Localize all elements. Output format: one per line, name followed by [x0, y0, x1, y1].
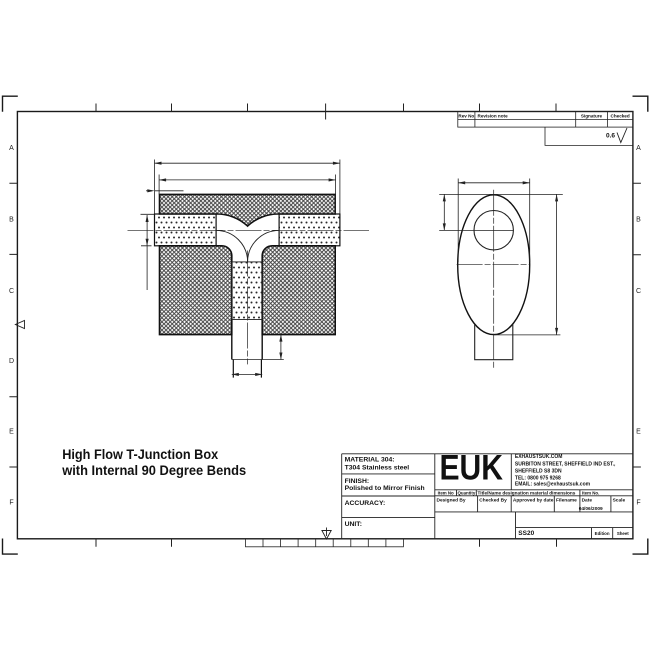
svg-text:Approved by date: Approved by date [513, 498, 554, 504]
svg-text:Designed By: Designed By [437, 498, 466, 504]
svg-text:E: E [636, 429, 641, 436]
svg-text:A: A [9, 145, 14, 152]
svg-text:EXHAUSTSUK.COM: EXHAUSTSUK.COM [515, 454, 563, 460]
svg-text:SHEFFIELD S8 3DN: SHEFFIELD S8 3DN [515, 469, 562, 475]
svg-text:EUK: EUK [440, 449, 504, 488]
svg-text:D: D [9, 358, 14, 365]
svg-text:SURBITON STREET, SHEFFIELD IND: SURBITON STREET, SHEFFIELD IND EST., [515, 462, 616, 468]
svg-text:Filename: Filename [556, 498, 577, 504]
svg-text:Quantity: Quantity [457, 490, 475, 495]
svg-text:F: F [636, 500, 640, 507]
svg-text:A: A [636, 145, 641, 152]
svg-text:Item No.: Item No. [582, 490, 599, 495]
svg-text:FINISH:: FINISH: [345, 478, 370, 485]
svg-text:Edition: Edition [595, 531, 610, 536]
svg-text:with Internal 90 Degree Bends: with Internal 90 Degree Bends [61, 463, 246, 478]
svg-text:T304 Stainless steel: T304 Stainless steel [345, 465, 410, 472]
svg-text:High Flow T-Junction Box: High Flow T-Junction Box [62, 447, 218, 462]
svg-text:Item No: Item No [438, 490, 454, 495]
svg-text:MATERIAL 304:: MATERIAL 304: [345, 456, 395, 463]
svg-text:0.6: 0.6 [606, 133, 615, 140]
svg-text:Revision note: Revision note [478, 113, 509, 118]
svg-text:Date: Date [582, 498, 593, 504]
svg-text:Signature: Signature [581, 113, 603, 118]
svg-text:Rev No: Rev No [458, 113, 474, 118]
svg-text:C: C [636, 288, 641, 295]
svg-text:E: E [9, 429, 14, 436]
svg-text:F: F [9, 500, 13, 507]
svg-text:B: B [9, 217, 14, 224]
svg-text:Title/Name designation materia: Title/Name designation material dimensio… [478, 491, 576, 496]
svg-text:SS20: SS20 [518, 530, 534, 537]
svg-text:Checked: Checked [611, 113, 630, 118]
svg-text:Checked By: Checked By [479, 498, 507, 504]
svg-text:EMAIL: sales@exhaustsuk.com: EMAIL: sales@exhaustsuk.com [515, 481, 591, 487]
svg-text:Sheet: Sheet [617, 531, 629, 536]
svg-text:C: C [9, 288, 14, 295]
svg-text:Polished to Mirror Finish: Polished to Mirror Finish [345, 485, 425, 492]
svg-text:04/06/2009: 04/06/2009 [579, 506, 603, 512]
svg-text:ACCURACY:: ACCURACY: [345, 500, 386, 507]
svg-text:UNIT:: UNIT: [345, 521, 362, 528]
svg-text:Scale: Scale [613, 498, 626, 504]
svg-text:B: B [636, 217, 641, 224]
